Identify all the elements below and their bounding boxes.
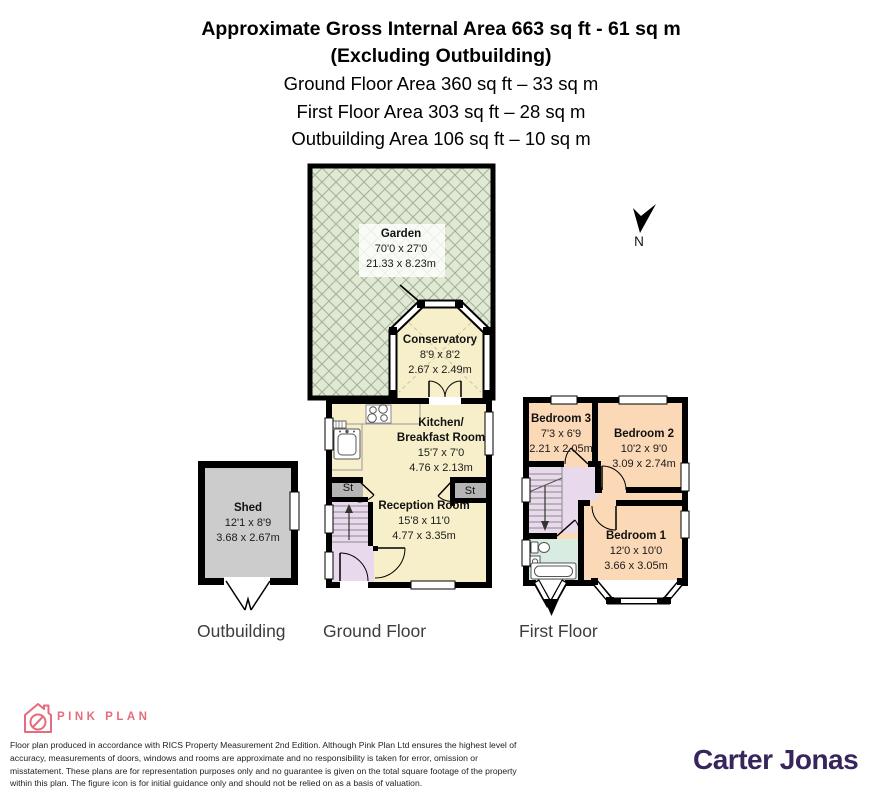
bedroom3-dims-m: 2.21 x 2.05m [529, 442, 593, 457]
conservatory-label: Conservatory 8'9 x 8'2 2.67 x 2.49m [403, 333, 477, 378]
vent-icon [333, 421, 346, 428]
pinkplan-house-icon [25, 704, 51, 732]
reception-dims-m: 4.77 x 3.35m [378, 529, 469, 544]
garden-dims-m: 21.33 x 8.23m [366, 257, 436, 272]
shed-name: Shed [216, 501, 280, 516]
title-line-1: Approximate Gross Internal Area 663 sq f… [0, 16, 882, 43]
disclaimer-text: Floor plan produced in accordance with R… [10, 739, 518, 790]
garden-dims-ft: 70'0 x 27'0 [366, 242, 436, 257]
shed-label: Shed 12'1 x 8'9 3.68 x 2.67m [216, 501, 280, 546]
hob-icon [366, 405, 391, 423]
bedroom1-dims-ft: 12'0 x 10'0 [604, 544, 668, 559]
kitchen-name-2: Breakfast Room [397, 431, 485, 446]
agency-logo-text: Carter Jonas [693, 744, 858, 776]
outbuilding-label: Outbuilding [197, 621, 286, 642]
ground-floor-label: Ground Floor [323, 621, 426, 642]
area-line-ground: Ground Floor Area 360 sq ft – 33 sq m [0, 70, 882, 98]
conservatory-dims-ft: 8'9 x 8'2 [403, 348, 477, 363]
conservatory-dims-m: 2.67 x 2.49m [403, 363, 477, 378]
shed-dims-m: 3.68 x 2.67m [216, 531, 280, 546]
bedroom3-dims-ft: 7'3 x 6'9 [529, 427, 593, 442]
kitchen-label: Kitchen/ Breakfast Room 15'7 x 7'0 4.76 … [397, 416, 485, 476]
bedroom1-label: Bedroom 1 12'0 x 10'0 3.66 x 3.05m [604, 529, 668, 574]
garden-name: Garden [366, 227, 436, 242]
bathtub-icon [531, 563, 576, 579]
pinkplan-brand-text: PINK PLAN [57, 711, 150, 723]
storage-left-label: St [343, 482, 353, 494]
first-floor-label: First Floor [519, 621, 598, 642]
garden-label: Garden 70'0 x 27'0 21.33 x 8.23m [366, 227, 436, 272]
shed-window [290, 492, 299, 530]
storage-right-label: St [465, 485, 475, 497]
shed-dims-ft: 12'1 x 8'9 [216, 516, 280, 531]
bedroom2-dims-ft: 10'2 x 9'0 [612, 442, 676, 457]
bedroom3-name: Bedroom 3 [529, 412, 593, 427]
floorplan-page: Approximate Gross Internal Area 663 sq f… [0, 0, 882, 800]
bedroom1-name: Bedroom 1 [604, 529, 668, 544]
sink-icon [334, 429, 360, 459]
area-line-outbuilding: Outbuilding Area 106 sq ft – 10 sq m [0, 125, 882, 153]
reception-label: Reception Room 15'8 x 11'0 4.77 x 3.35m [378, 499, 469, 544]
kitchen-dims-ft: 15'7 x 7'0 [397, 446, 485, 461]
north-arrow-icon [633, 204, 656, 233]
kitchen-dims-m: 4.76 x 2.13m [397, 461, 485, 476]
bedroom2-dims-m: 3.09 x 2.74m [612, 457, 676, 472]
toilet-icon [531, 542, 550, 553]
header-block: Approximate Gross Internal Area 663 sq f… [0, 16, 882, 153]
north-label: N [630, 234, 648, 249]
title-line-2: (Excluding Outbuilding) [0, 43, 882, 70]
kitchen-name-1: Kitchen/ [397, 416, 485, 431]
bedroom3-label: Bedroom 3 7'3 x 6'9 2.21 x 2.05m [529, 412, 593, 457]
area-line-first: First Floor Area 303 sq ft – 28 sq m [0, 98, 882, 126]
bedroom1-dims-m: 3.66 x 3.05m [604, 559, 668, 574]
bedroom2-name: Bedroom 2 [612, 427, 676, 442]
reception-dims-ft: 15'8 x 11'0 [378, 514, 469, 529]
conservatory-name: Conservatory [403, 333, 477, 348]
reception-name: Reception Room [378, 499, 469, 514]
bedroom2-label: Bedroom 2 10'2 x 9'0 3.09 x 2.74m [612, 427, 676, 472]
